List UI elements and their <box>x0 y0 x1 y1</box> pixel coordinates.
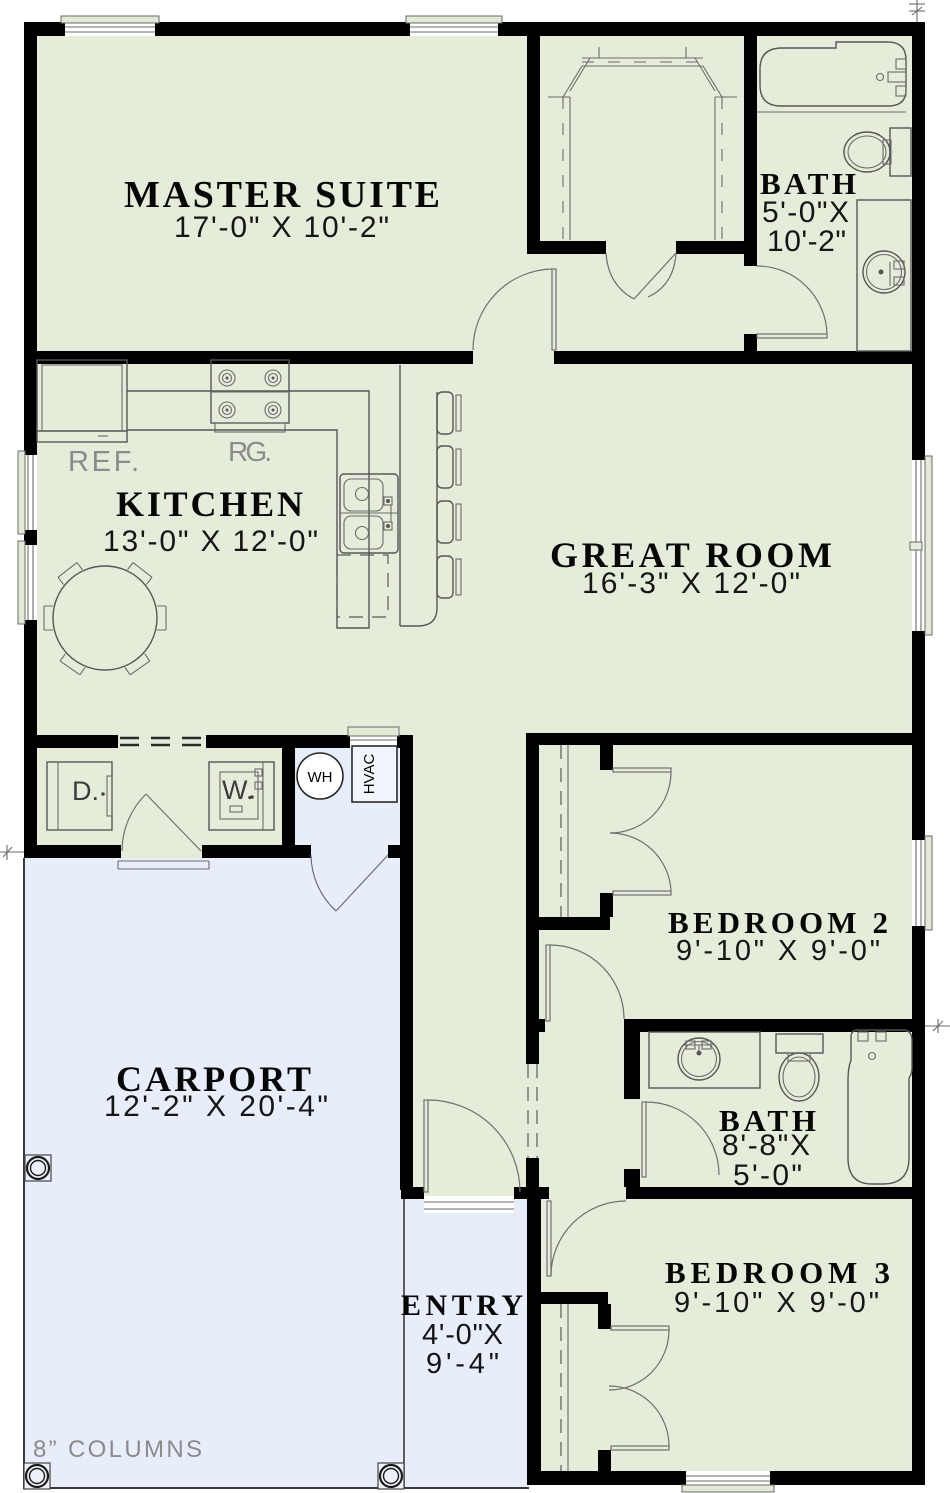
svg-text:WH: WH <box>308 769 333 786</box>
svg-text:BEDROOM 3: BEDROOM 3 <box>665 1255 890 1290</box>
svg-text:ENTRY: ENTRY <box>401 1289 523 1322</box>
svg-text:MASTER SUITE: MASTER SUITE <box>124 174 440 216</box>
svg-text:RG.: RG. <box>228 436 272 467</box>
svg-text:HVAC: HVAC <box>361 754 378 795</box>
svg-text:5'-0": 5'-0" <box>733 1159 802 1192</box>
svg-text:17'-0" X 10'-2": 17'-0" X 10'-2" <box>174 211 389 244</box>
svg-text:4'-0"X: 4'-0"X <box>422 1319 503 1351</box>
svg-text:D.: D. <box>72 776 99 806</box>
svg-text:10'-2": 10'-2" <box>767 225 846 258</box>
svg-text:8'-8"X: 8'-8"X <box>722 1129 810 1162</box>
svg-text:8” COLUMNS: 8” COLUMNS <box>33 1436 202 1463</box>
svg-text:12'-2" X 20'-4": 12'-2" X 20'-4" <box>104 1090 328 1123</box>
svg-text:13'-0" X 12'-0": 13'-0" X 12'-0" <box>103 525 318 558</box>
svg-text:W.: W. <box>222 775 254 805</box>
svg-text:9'-4": 9'-4" <box>426 1348 499 1380</box>
svg-text:16'-3" X 12'-0": 16'-3" X 12'-0" <box>582 567 800 600</box>
